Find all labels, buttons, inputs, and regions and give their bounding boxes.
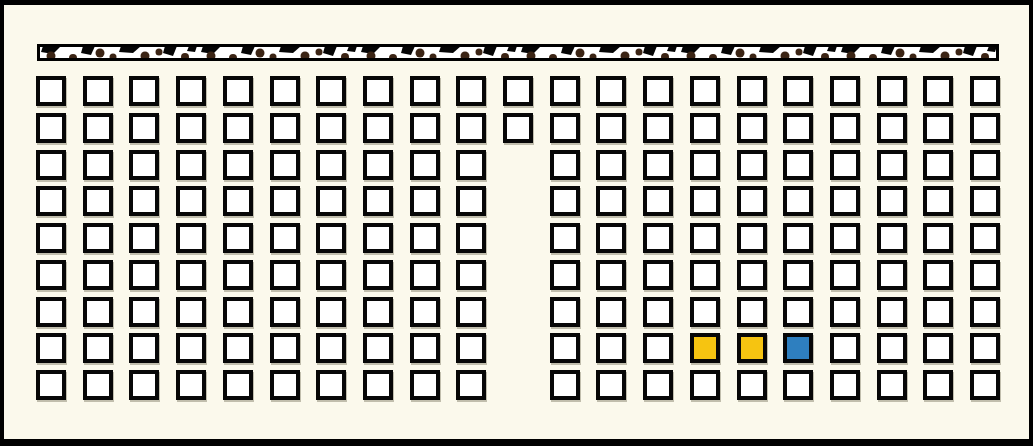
- seat-cell[interactable]: [503, 113, 533, 143]
- seat-cell[interactable]: [176, 260, 206, 290]
- seat-cell[interactable]: [690, 150, 720, 180]
- seat-cell[interactable]: [223, 333, 253, 363]
- seat-cell[interactable]: [410, 333, 440, 363]
- seat-cell[interactable]: [363, 223, 393, 253]
- seat-cell[interactable]: [176, 370, 206, 400]
- seat-cell[interactable]: [596, 223, 626, 253]
- seat-cell[interactable]: [923, 297, 953, 327]
- seat-cell[interactable]: [410, 297, 440, 327]
- seat-cell[interactable]: [456, 113, 486, 143]
- seat-cell[interactable]: [877, 333, 907, 363]
- seat-cell[interactable]: [36, 333, 66, 363]
- seat-cell[interactable]: [363, 113, 393, 143]
- seat-cell[interactable]: [129, 370, 159, 400]
- seat-cell[interactable]: [129, 76, 159, 106]
- seat-cell[interactable]: [690, 186, 720, 216]
- seat-cell[interactable]: [36, 370, 66, 400]
- seat-cell[interactable]: [923, 333, 953, 363]
- seat-cell[interactable]: [596, 113, 626, 143]
- seat-cell[interactable]: [830, 223, 860, 253]
- seat-cell[interactable]: [36, 76, 66, 106]
- seat-cell[interactable]: [456, 333, 486, 363]
- seat-cell[interactable]: [877, 186, 907, 216]
- seat-cell[interactable]: [970, 186, 1000, 216]
- seat-cell[interactable]: [970, 113, 1000, 143]
- seat-cell[interactable]: [877, 150, 907, 180]
- seat-cell[interactable]: [176, 76, 206, 106]
- seat-cell[interactable]: [550, 186, 580, 216]
- seat-cell[interactable]: [83, 260, 113, 290]
- seat-cell[interactable]: [550, 370, 580, 400]
- seat-cell[interactable]: [596, 333, 626, 363]
- seat-cell[interactable]: [550, 297, 580, 327]
- seat-cell[interactable]: [223, 186, 253, 216]
- seat-cell[interactable]: [970, 150, 1000, 180]
- seat-cell[interactable]: [270, 370, 300, 400]
- seat-cell[interactable]: [550, 150, 580, 180]
- seat-cell[interactable]: [36, 260, 66, 290]
- seat-cell[interactable]: [36, 150, 66, 180]
- seat-cell[interactable]: [129, 297, 159, 327]
- seat-cell[interactable]: [690, 333, 720, 363]
- seat-cell[interactable]: [176, 186, 206, 216]
- seat-cell[interactable]: [363, 76, 393, 106]
- seat-cell[interactable]: [223, 370, 253, 400]
- seat-cell[interactable]: [270, 150, 300, 180]
- seat-cell[interactable]: [176, 333, 206, 363]
- seat-cell[interactable]: [830, 113, 860, 143]
- seat-cell[interactable]: [830, 297, 860, 327]
- seat-cell[interactable]: [36, 297, 66, 327]
- seat-cell[interactable]: [643, 76, 673, 106]
- seat-cell[interactable]: [690, 223, 720, 253]
- seat-cell[interactable]: [970, 76, 1000, 106]
- seat-cell[interactable]: [783, 260, 813, 290]
- seat-cell[interactable]: [737, 150, 767, 180]
- seat-cell[interactable]: [363, 297, 393, 327]
- seat-cell[interactable]: [877, 113, 907, 143]
- seat-cell[interactable]: [176, 223, 206, 253]
- seat-cell[interactable]: [83, 370, 113, 400]
- seat-cell[interactable]: [316, 260, 346, 290]
- seat-cell[interactable]: [970, 297, 1000, 327]
- seat-cell[interactable]: [737, 297, 767, 327]
- seat-cell[interactable]: [36, 223, 66, 253]
- seat-cell[interactable]: [316, 297, 346, 327]
- seat-grid: [4, 5, 1029, 439]
- seat-cell[interactable]: [550, 333, 580, 363]
- seat-cell[interactable]: [877, 260, 907, 290]
- seat-cell[interactable]: [270, 76, 300, 106]
- seat-cell[interactable]: [410, 150, 440, 180]
- seat-cell[interactable]: [316, 76, 346, 106]
- seat-cell[interactable]: [363, 370, 393, 400]
- seat-cell[interactable]: [363, 186, 393, 216]
- seat-cell[interactable]: [643, 260, 673, 290]
- seat-cell[interactable]: [596, 260, 626, 290]
- seat-cell[interactable]: [316, 223, 346, 253]
- seating-chart-panel: [0, 0, 1033, 446]
- seat-cell[interactable]: [410, 370, 440, 400]
- seat-cell[interactable]: [690, 113, 720, 143]
- seat-cell[interactable]: [129, 260, 159, 290]
- seat-cell[interactable]: [877, 223, 907, 253]
- seat-cell[interactable]: [550, 76, 580, 106]
- seat-cell[interactable]: [970, 223, 1000, 253]
- seat-cell[interactable]: [923, 76, 953, 106]
- seat-cell[interactable]: [690, 297, 720, 327]
- seat-cell[interactable]: [596, 186, 626, 216]
- seat-cell[interactable]: [129, 150, 159, 180]
- seat-cell[interactable]: [363, 260, 393, 290]
- seat-cell[interactable]: [737, 370, 767, 400]
- seat-cell[interactable]: [783, 113, 813, 143]
- seat-cell[interactable]: [830, 260, 860, 290]
- seat-cell[interactable]: [923, 150, 953, 180]
- seat-cell[interactable]: [270, 333, 300, 363]
- seat-cell[interactable]: [643, 223, 673, 253]
- seat-cell[interactable]: [596, 297, 626, 327]
- seat-cell[interactable]: [923, 113, 953, 143]
- seat-cell[interactable]: [783, 333, 813, 363]
- seat-cell[interactable]: [550, 260, 580, 290]
- seat-cell[interactable]: [316, 150, 346, 180]
- seat-cell[interactable]: [737, 223, 767, 253]
- seat-cell[interactable]: [456, 223, 486, 253]
- seat-cell[interactable]: [270, 186, 300, 216]
- seat-cell[interactable]: [456, 150, 486, 180]
- seat-cell[interactable]: [970, 370, 1000, 400]
- seat-cell[interactable]: [643, 297, 673, 327]
- seat-cell[interactable]: [270, 223, 300, 253]
- seat-cell[interactable]: [83, 297, 113, 327]
- seat-cell[interactable]: [783, 297, 813, 327]
- seat-cell[interactable]: [830, 150, 860, 180]
- seat-cell[interactable]: [643, 333, 673, 363]
- seat-cell[interactable]: [83, 150, 113, 180]
- seat-cell[interactable]: [410, 76, 440, 106]
- seat-cell[interactable]: [596, 370, 626, 400]
- seat-cell[interactable]: [176, 297, 206, 327]
- seat-cell[interactable]: [690, 76, 720, 106]
- seat-cell[interactable]: [923, 223, 953, 253]
- seat-cell[interactable]: [830, 186, 860, 216]
- seat-cell[interactable]: [129, 333, 159, 363]
- seat-cell[interactable]: [550, 113, 580, 143]
- seat-cell[interactable]: [316, 113, 346, 143]
- seat-cell[interactable]: [550, 223, 580, 253]
- seat-cell[interactable]: [877, 297, 907, 327]
- seat-cell[interactable]: [737, 260, 767, 290]
- seat-cell[interactable]: [129, 113, 159, 143]
- seat-cell[interactable]: [316, 186, 346, 216]
- seat-cell[interactable]: [503, 76, 533, 106]
- seat-cell[interactable]: [316, 370, 346, 400]
- seat-cell[interactable]: [456, 76, 486, 106]
- seat-cell[interactable]: [223, 150, 253, 180]
- seat-cell[interactable]: [783, 223, 813, 253]
- seat-cell[interactable]: [830, 333, 860, 363]
- seat-cell[interactable]: [923, 260, 953, 290]
- seat-cell[interactable]: [783, 76, 813, 106]
- seat-cell[interactable]: [783, 370, 813, 400]
- seat-cell[interactable]: [877, 370, 907, 400]
- seat-cell[interactable]: [737, 113, 767, 143]
- seat-cell[interactable]: [36, 186, 66, 216]
- seat-cell[interactable]: [596, 76, 626, 106]
- seat-cell[interactable]: [643, 113, 673, 143]
- seat-cell[interactable]: [456, 370, 486, 400]
- seat-cell[interactable]: [176, 113, 206, 143]
- seat-cell[interactable]: [83, 76, 113, 106]
- seat-cell[interactable]: [830, 370, 860, 400]
- seat-cell[interactable]: [830, 76, 860, 106]
- seat-cell[interactable]: [410, 223, 440, 253]
- seat-cell[interactable]: [596, 150, 626, 180]
- seat-cell[interactable]: [223, 223, 253, 253]
- seat-cell[interactable]: [83, 113, 113, 143]
- seat-cell[interactable]: [410, 260, 440, 290]
- seat-cell[interactable]: [783, 150, 813, 180]
- seat-cell[interactable]: [970, 333, 1000, 363]
- seat-cell[interactable]: [363, 150, 393, 180]
- seat-cell[interactable]: [223, 76, 253, 106]
- seat-cell[interactable]: [83, 186, 113, 216]
- seat-cell[interactable]: [176, 150, 206, 180]
- seat-cell[interactable]: [783, 186, 813, 216]
- seat-cell[interactable]: [737, 333, 767, 363]
- seat-cell[interactable]: [923, 186, 953, 216]
- seat-cell[interactable]: [223, 297, 253, 327]
- seat-cell[interactable]: [643, 186, 673, 216]
- seat-cell[interactable]: [129, 186, 159, 216]
- seat-cell[interactable]: [737, 76, 767, 106]
- seat-cell[interactable]: [83, 333, 113, 363]
- seat-cell[interactable]: [690, 260, 720, 290]
- seat-cell[interactable]: [643, 150, 673, 180]
- seat-cell[interactable]: [456, 186, 486, 216]
- seat-cell[interactable]: [316, 333, 346, 363]
- seat-cell[interactable]: [970, 260, 1000, 290]
- seat-cell[interactable]: [36, 113, 66, 143]
- seat-cell[interactable]: [456, 297, 486, 327]
- seat-cell[interactable]: [643, 370, 673, 400]
- seat-cell[interactable]: [129, 223, 159, 253]
- seat-cell[interactable]: [223, 113, 253, 143]
- seat-cell[interactable]: [270, 260, 300, 290]
- seat-cell[interactable]: [410, 186, 440, 216]
- seat-cell[interactable]: [737, 186, 767, 216]
- seat-cell[interactable]: [363, 333, 393, 363]
- seat-cell[interactable]: [270, 113, 300, 143]
- seat-cell[interactable]: [223, 260, 253, 290]
- seat-cell[interactable]: [690, 370, 720, 400]
- seat-cell[interactable]: [923, 370, 953, 400]
- seat-cell[interactable]: [456, 260, 486, 290]
- seat-cell[interactable]: [410, 113, 440, 143]
- seat-cell[interactable]: [83, 223, 113, 253]
- seat-cell[interactable]: [270, 297, 300, 327]
- seat-cell[interactable]: [877, 76, 907, 106]
